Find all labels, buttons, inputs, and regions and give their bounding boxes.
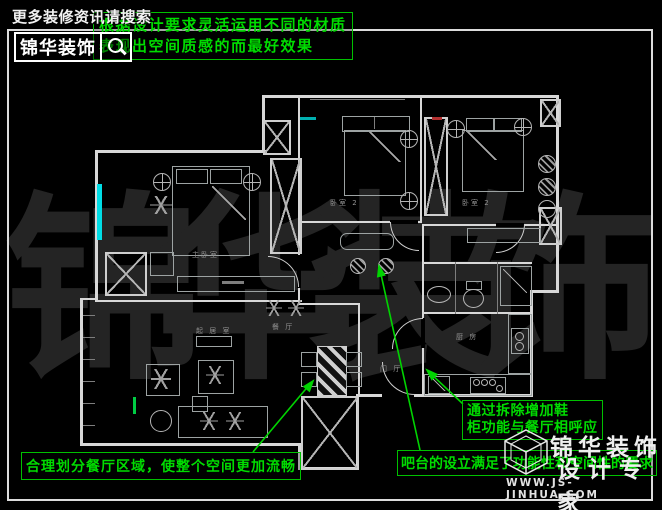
search-icon xyxy=(102,34,130,60)
annotation-arrow xyxy=(380,270,420,450)
website-url: WWW.JS-JINHUA.COM xyxy=(506,477,662,501)
cube-logo-icon xyxy=(503,428,549,476)
search-icon-handle xyxy=(119,48,126,55)
annotation-dining: 合理划分餐厅区域，使整个空间更加流畅 xyxy=(21,452,301,480)
search-hint-text: 更多装修资讯请搜索 xyxy=(12,6,152,27)
arrowhead-icon xyxy=(378,266,385,277)
annotation-arrow xyxy=(430,373,463,404)
annotation-shoe-line1: 通过拆除增加鞋 xyxy=(467,403,598,420)
floorplan-page: 锦华装饰 xyxy=(0,0,662,510)
top-logo-box: 锦华装饰 xyxy=(14,32,132,62)
top-logo-text: 锦华装饰 xyxy=(16,34,100,60)
annotation-material-line2: 表现出空间质感的而最好效果 xyxy=(99,36,347,57)
annotation-arrow xyxy=(253,384,310,452)
